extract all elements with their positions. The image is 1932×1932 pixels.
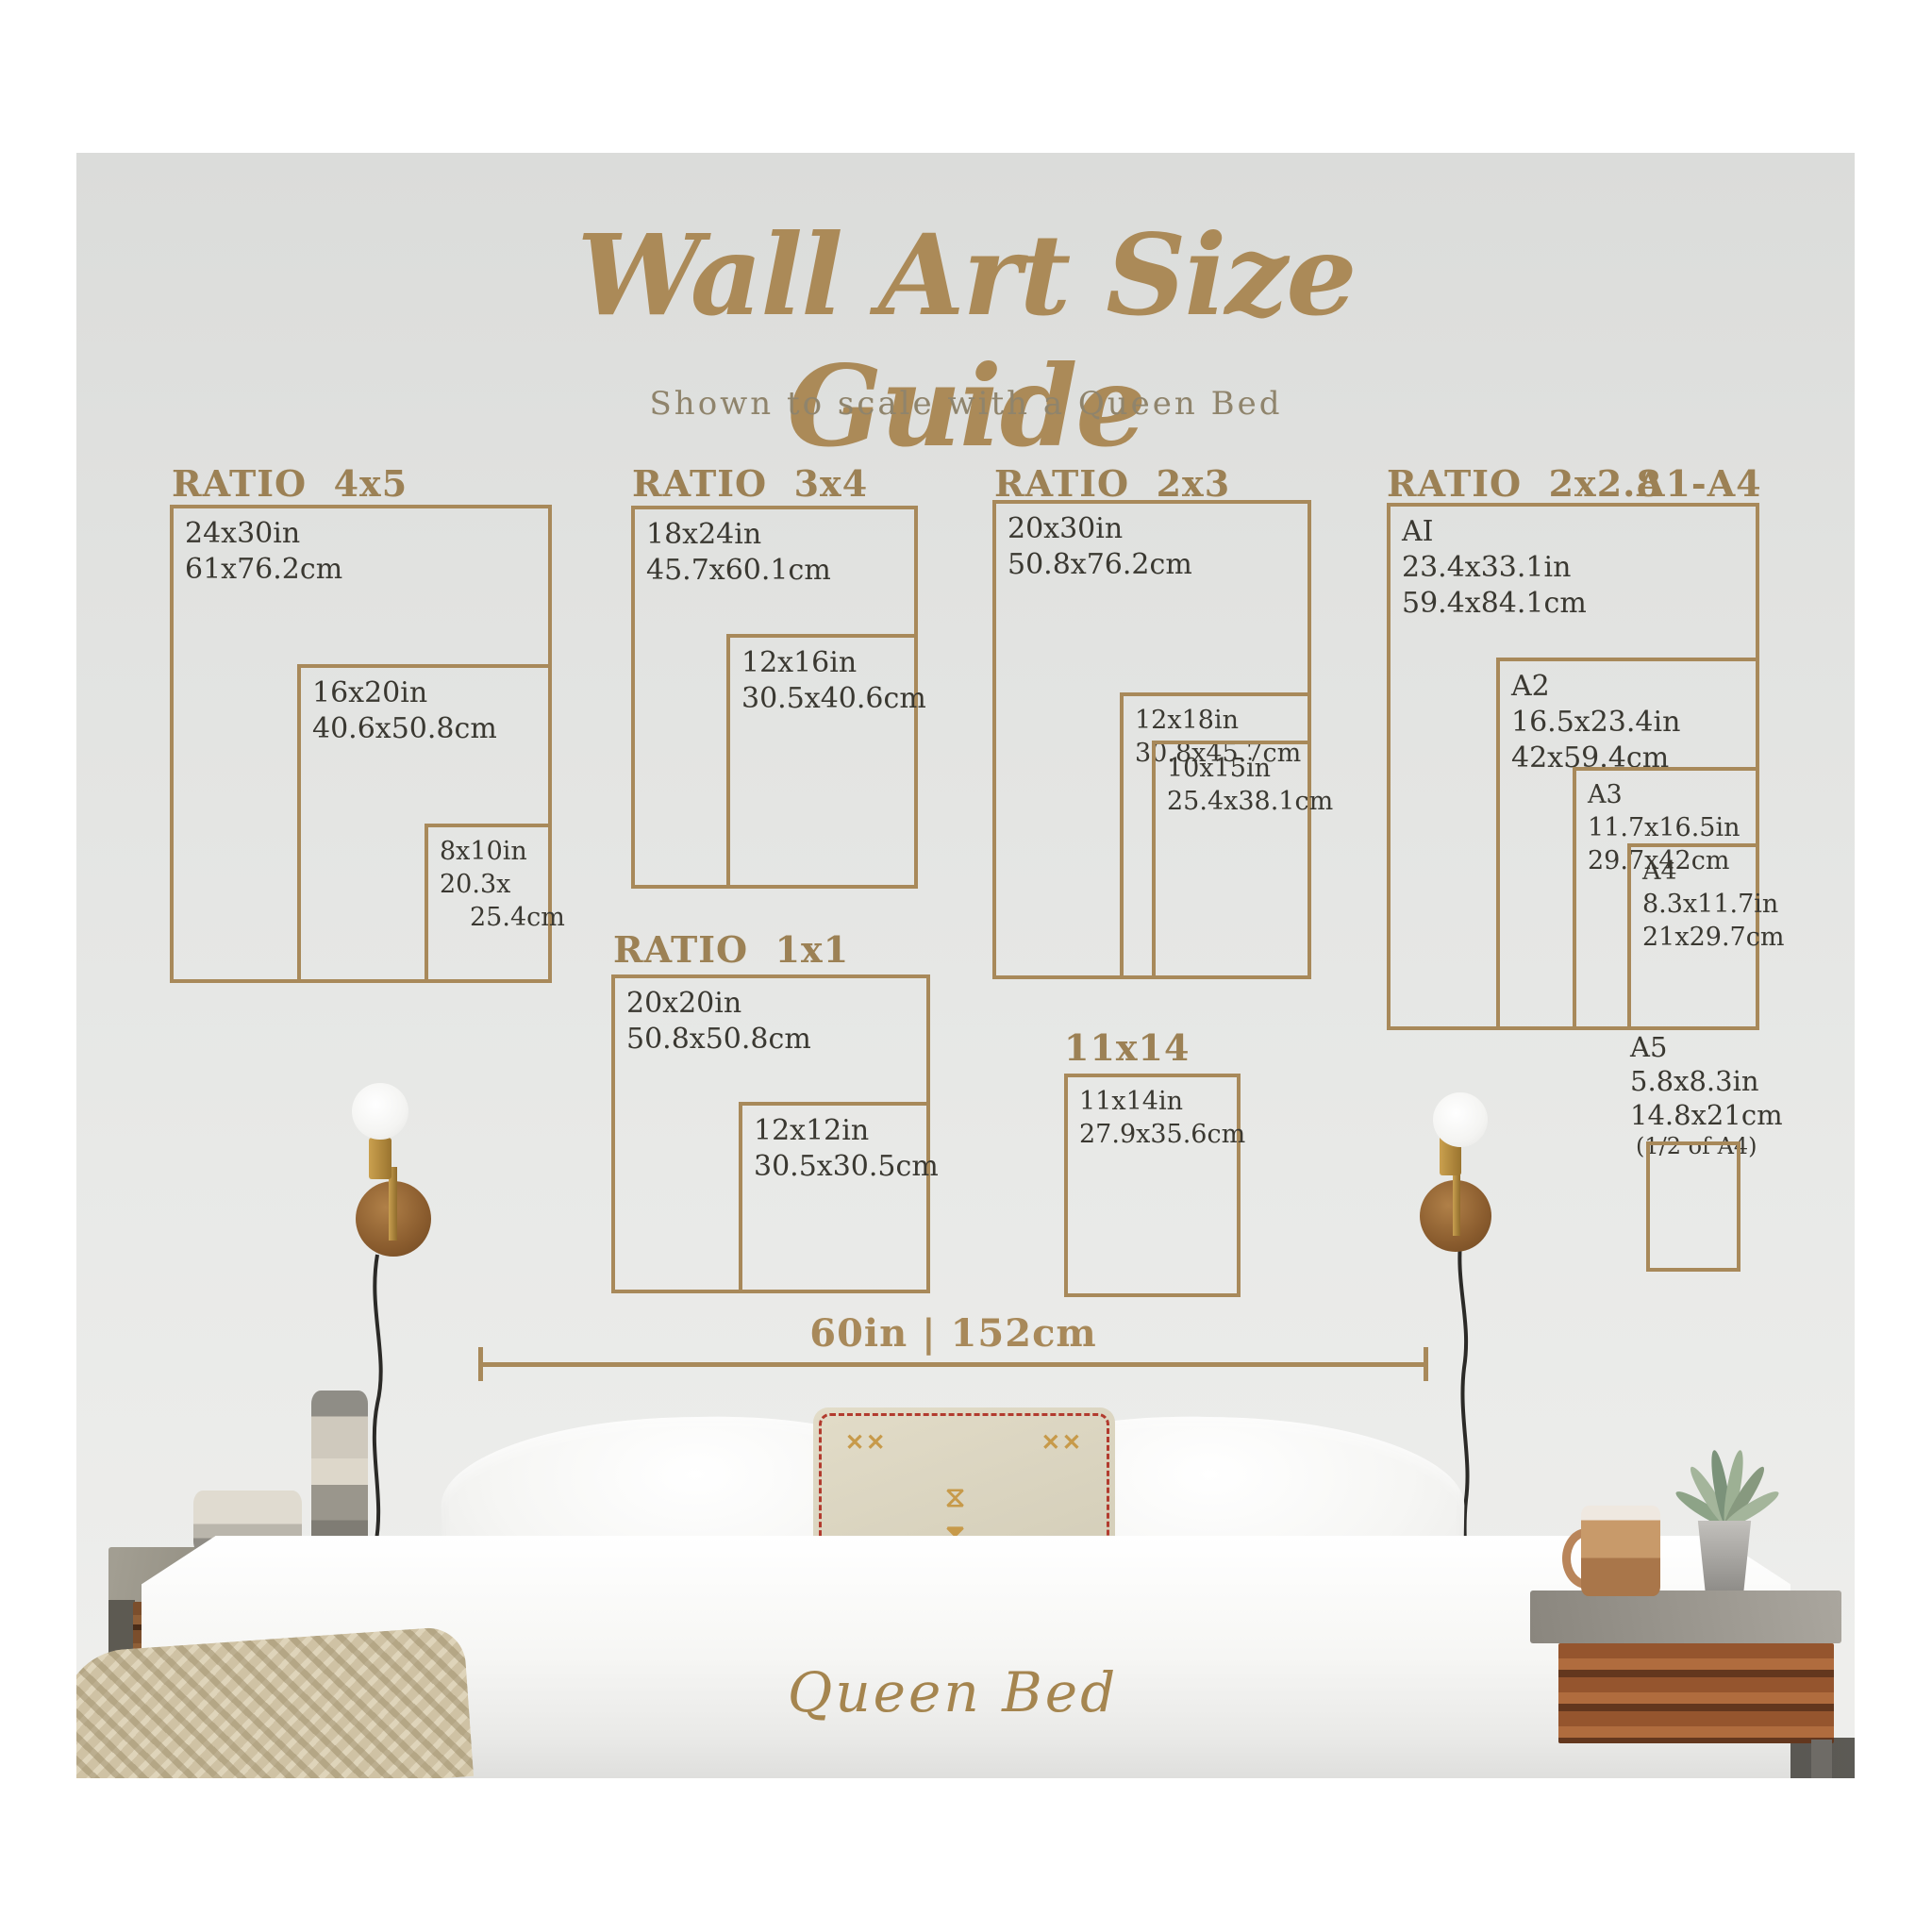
group-title-2x2-8: RATIO 2x2.8 [1387, 462, 1662, 505]
group-title-3x4: RATIO 3x4 [632, 462, 868, 505]
frame-label-18x24: 18x24in 45.7x60.1cm [646, 517, 831, 589]
frame-a5 [1646, 1141, 1740, 1272]
measure-tick-right [1424, 1347, 1428, 1381]
frame-12x12: 12x12in 30.5x30.5cm [739, 1102, 930, 1293]
page-subtitle: Shown to scale with a Queen Bed [494, 385, 1438, 423]
frame-label-10x15: 10x15in 25.4x38.1cm [1167, 752, 1333, 818]
pillow-motif: ⧖ [945, 1481, 967, 1514]
frame-a4: A4 8.3x11.7in 21x29.7cm [1627, 843, 1759, 1030]
right-nightstand-top [1530, 1591, 1841, 1643]
queen-bed-label: Queen Bed [774, 1660, 1132, 1724]
right-sconce-bulb [1433, 1092, 1488, 1147]
a5-inches: 5.8x8.3in [1630, 1064, 1783, 1098]
succulent-plant [1671, 1438, 1784, 1532]
frame-label-12x12: 12x12in 30.5x30.5cm [754, 1113, 939, 1185]
a5-name: A5 [1630, 1030, 1783, 1064]
knit-throw [76, 1625, 474, 1778]
frame-12x16: 12x16in 30.5x40.6cm [726, 634, 918, 889]
left-sconce-socket [369, 1138, 391, 1179]
frame-label-24x30: 24x30in 61x76.2cm [185, 516, 342, 588]
group-title-4x5: RATIO 4x5 [172, 462, 408, 505]
group-title-1x1: RATIO 1x1 [613, 928, 849, 971]
pillow-motif: ✕✕ [845, 1428, 887, 1456]
frame-label-8x10: 8x10in 20.3x 25.4cm [440, 835, 565, 934]
group-title-a1-a4: A1-A4 [1637, 462, 1762, 505]
group-title-2x3: RATIO 2x3 [994, 462, 1230, 505]
frame-11x14: 11x14in 27.9x35.6cm [1064, 1074, 1241, 1297]
pillow-motif: ✕✕ [1041, 1428, 1083, 1456]
frame-label-20x20: 20x20in 50.8x50.8cm [626, 986, 811, 1058]
frame-label-a1: AI 23.4x33.1in 59.4x84.1cm [1402, 514, 1587, 622]
frame-label-20x30: 20x30in 50.8x76.2cm [1008, 511, 1192, 583]
frame-label-a2: A2 16.5x23.4in 42x59.4cm [1511, 669, 1680, 776]
frame-label-11x14: 11x14in 27.9x35.6cm [1079, 1085, 1245, 1151]
measure-tick-left [478, 1347, 483, 1381]
wall-art-size-guide-image: ✕✕ ✕✕ ⧖ ⧗ ✕✕ ✕✕ [0, 0, 1932, 1932]
measure-line [478, 1362, 1428, 1367]
frame-label-a4: A4 8.3x11.7in 21x29.7cm [1642, 855, 1784, 954]
frame-10x15: 10x15in 25.4x38.1cm [1152, 741, 1311, 979]
left-sconce-bulb [352, 1083, 408, 1140]
frame-label-12x16: 12x16in 30.5x40.6cm [741, 645, 926, 717]
right-nightstand-leg [1811, 1740, 1832, 1778]
group-title-11x14: 11x14 [1064, 1026, 1190, 1069]
ceramic-vessel-tall [311, 1391, 368, 1553]
page-title: Wall Art Size Guide [396, 209, 1536, 472]
frame-label-16x20: 16x20in 40.6x50.8cm [312, 675, 497, 747]
right-nightstand-drawer [1558, 1643, 1834, 1743]
bed-width-label: 60in | 152cm [478, 1311, 1428, 1356]
mug [1581, 1506, 1660, 1596]
frame-8x10: 8x10in 20.3x 25.4cm [425, 824, 552, 983]
a5-cm: 14.8x21cm [1630, 1098, 1783, 1132]
